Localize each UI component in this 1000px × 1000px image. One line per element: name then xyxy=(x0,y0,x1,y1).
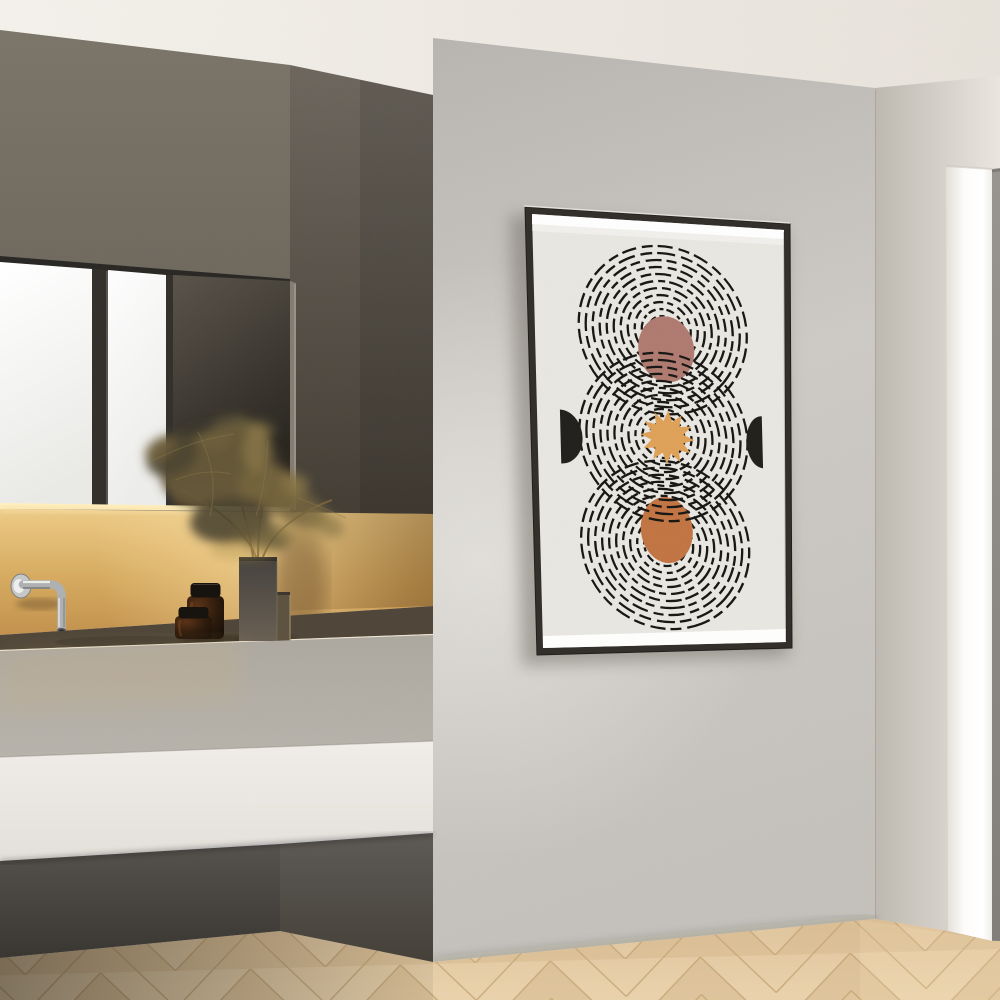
bathroom-interior-photo xyxy=(0,0,1000,1000)
door-top-shadow-line xyxy=(992,170,1000,171)
door xyxy=(992,168,1000,941)
scene xyxy=(0,0,1000,1000)
door-jamb-pillar xyxy=(946,166,992,941)
vase-step xyxy=(277,592,290,641)
vase-step-top xyxy=(277,592,290,595)
mirror-divider xyxy=(92,269,108,506)
mirror-panel-left xyxy=(0,262,92,506)
jar-large-lid xyxy=(191,583,221,598)
vase-front xyxy=(239,557,277,641)
jar-small-lid xyxy=(179,607,209,619)
framed-abstract-poster xyxy=(510,206,792,666)
right-wall-and-doorway xyxy=(875,76,1000,941)
poster-artwork xyxy=(532,212,786,663)
faucet-shadow xyxy=(16,598,64,610)
counter-warm-reflection xyxy=(0,640,240,712)
vanity-body xyxy=(0,635,433,861)
